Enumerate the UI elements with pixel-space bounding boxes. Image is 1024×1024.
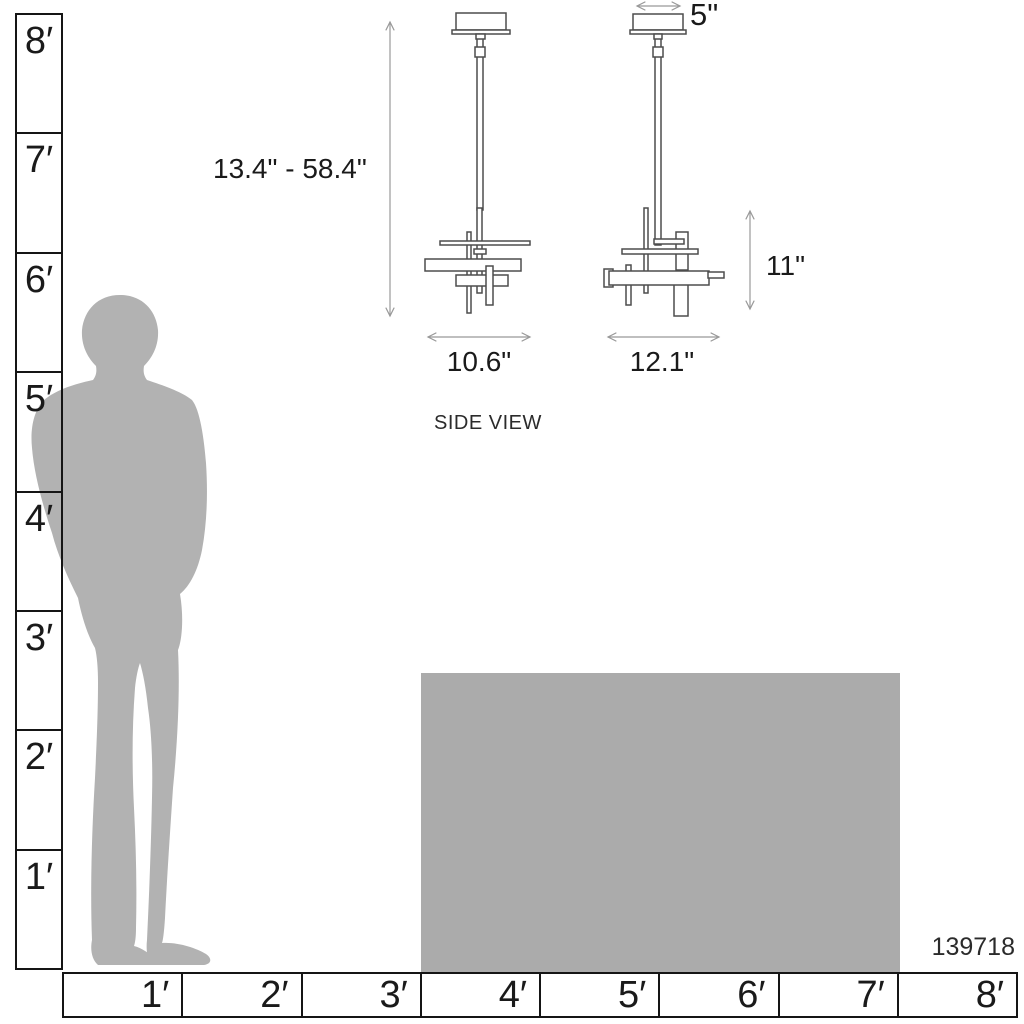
- ruler-label: 2′: [25, 738, 53, 776]
- product-code: 139718: [878, 933, 1015, 962]
- ruler-label: 5′: [25, 380, 53, 418]
- ruler-label: 2′: [260, 976, 288, 1014]
- pendant-side-view-drawing: [425, 13, 530, 313]
- vertical-ruler-cell: 1′: [17, 851, 61, 968]
- ruler-label: 6′: [25, 261, 53, 299]
- ruler-label: 4′: [25, 500, 53, 538]
- ruler-label: 5′: [618, 976, 646, 1014]
- horizontal-ruler-cell: 5′: [541, 974, 660, 1016]
- fixture-height-label: 11": [766, 250, 805, 282]
- table-reference-block: [421, 673, 900, 972]
- vertical-ruler-cell: 4′: [17, 493, 61, 612]
- horizontal-ruler-cell: 2′: [183, 974, 302, 1016]
- horizontal-ruler-cell: 4′: [422, 974, 541, 1016]
- ruler-label: 8′: [25, 22, 53, 60]
- dimension-arrows: [390, 6, 750, 337]
- ruler-label: 8′: [976, 976, 1004, 1014]
- front-width-label: 12.1": [606, 346, 718, 378]
- ruler-label: 1′: [25, 858, 53, 896]
- ruler-label: 7′: [25, 141, 53, 179]
- ruler-label: 4′: [499, 976, 527, 1014]
- vertical-ruler-cell: 2′: [17, 731, 61, 850]
- vertical-ruler-cell: 8′: [17, 15, 61, 134]
- horizontal-ruler-cell: 8′: [899, 974, 1016, 1016]
- ruler-label: 6′: [737, 976, 765, 1014]
- side-width-label: 10.6": [423, 346, 535, 378]
- horizontal-ruler-cell: 6′: [660, 974, 779, 1016]
- horizontal-ruler-cell: 7′: [780, 974, 899, 1016]
- ruler-label: 3′: [25, 619, 53, 657]
- ruler-label: 3′: [379, 976, 407, 1014]
- ruler-label: 1′: [141, 976, 169, 1014]
- pendant-front-view-drawing: [604, 14, 724, 316]
- vertical-ruler-cell: 7′: [17, 134, 61, 253]
- horizontal-ruler: 1′ 2′ 3′ 4′ 5′ 6′ 7′ 8′: [62, 972, 1018, 1018]
- height-range-label: 13.4" - 58.4": [213, 153, 367, 185]
- canopy-width-label: 5": [690, 0, 718, 33]
- vertical-ruler-cell: 6′: [17, 254, 61, 373]
- horizontal-ruler-cell: 1′: [64, 974, 183, 1016]
- horizontal-ruler-cell: 3′: [303, 974, 422, 1016]
- vertical-ruler-cell: 5′: [17, 373, 61, 492]
- vertical-ruler-cell: 3′: [17, 612, 61, 731]
- ruler-label: 7′: [856, 976, 884, 1014]
- vertical-ruler: 8′ 7′ 6′ 5′ 4′ 3′ 2′ 1′: [15, 13, 63, 970]
- side-view-caption: SIDE VIEW: [434, 412, 542, 435]
